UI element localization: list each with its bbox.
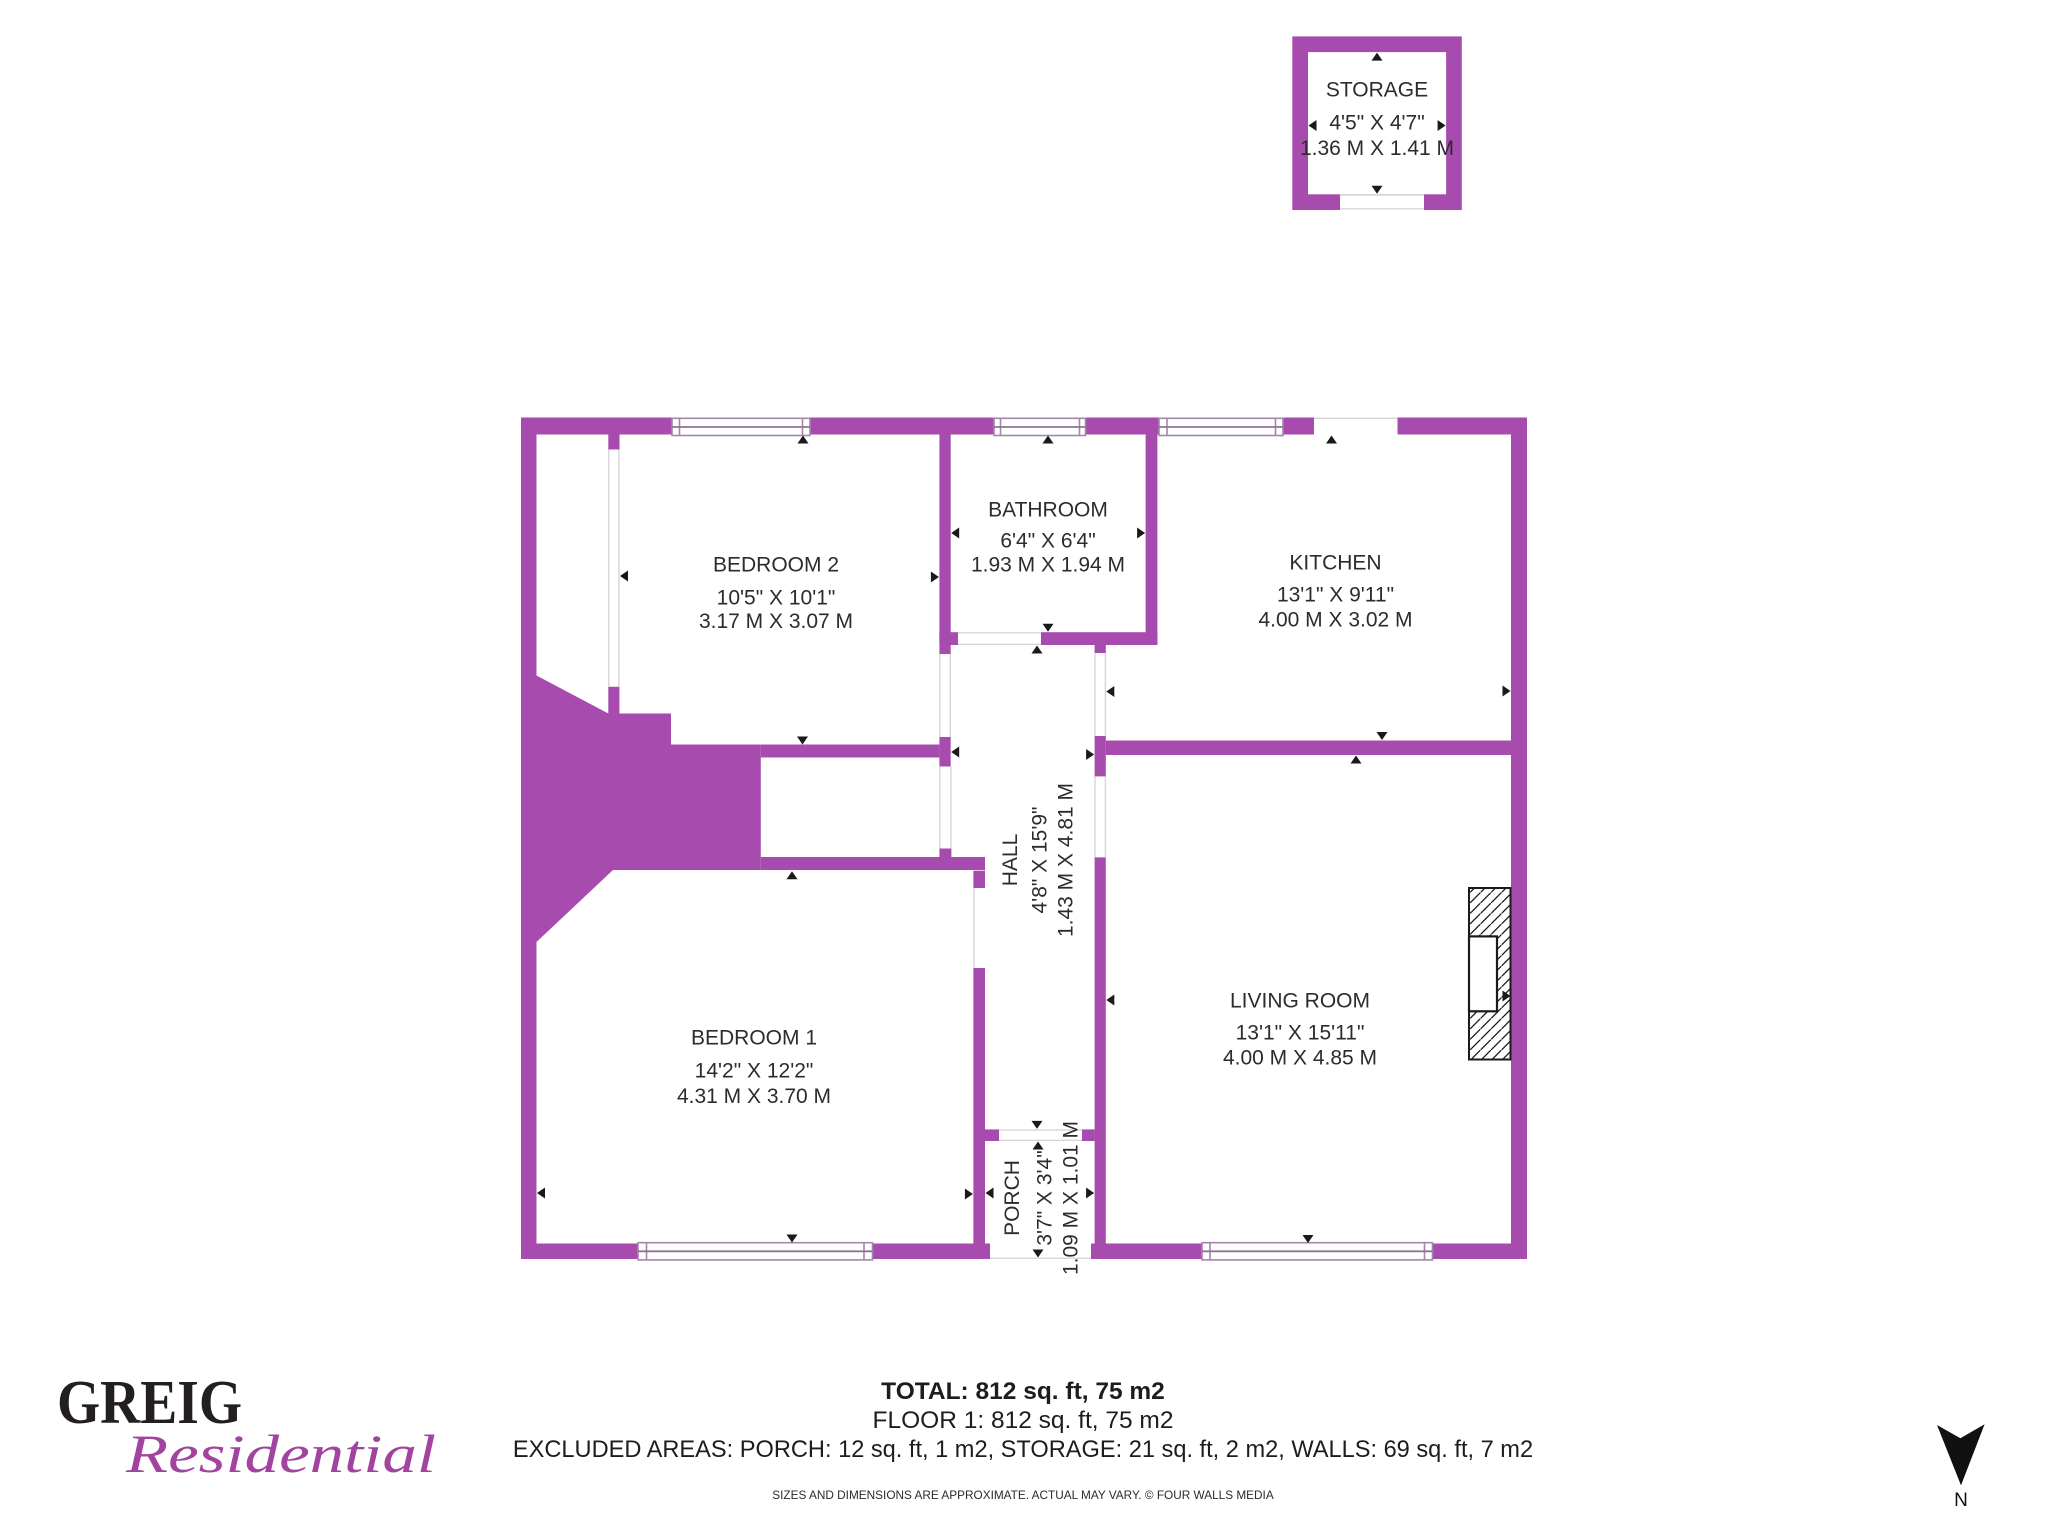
svg-text:1.36 M X 1.41 M: 1.36 M X 1.41 M — [1300, 137, 1454, 160]
svg-text:10'5" X 10'1": 10'5" X 10'1" — [717, 586, 836, 609]
svg-text:N: N — [1954, 1490, 1968, 1511]
svg-text:3.17 M X 3.07 M: 3.17 M X 3.07 M — [699, 610, 853, 633]
svg-text:4.00 M X 3.02 M: 4.00 M X 3.02 M — [1258, 609, 1412, 632]
svg-text:1.09 M X 1.01 M: 1.09 M X 1.01 M — [1060, 1121, 1083, 1275]
svg-text:3'7" X 3'4": 3'7" X 3'4" — [1034, 1150, 1057, 1245]
svg-text:Residential: Residential — [125, 1424, 436, 1484]
svg-text:BEDROOM 2: BEDROOM 2 — [713, 554, 839, 577]
svg-text:EXCLUDED AREAS: PORCH: 12 sq.: EXCLUDED AREAS: PORCH: 12 sq. ft, 1 m2, … — [513, 1437, 1533, 1463]
svg-text:1.43 M X 4.81 M: 1.43 M X 4.81 M — [1055, 783, 1078, 937]
svg-text:4.00 M X 4.85 M: 4.00 M X 4.85 M — [1223, 1046, 1377, 1069]
svg-text:14'2" X 12'2": 14'2" X 12'2" — [695, 1060, 814, 1083]
svg-text:LIVING ROOM: LIVING ROOM — [1230, 990, 1370, 1013]
svg-text:TOTAL: 812 sq. ft, 75 m2: TOTAL: 812 sq. ft, 75 m2 — [881, 1378, 1165, 1405]
svg-text:4.31 M X 3.70 M: 4.31 M X 3.70 M — [677, 1085, 831, 1108]
svg-text:13'1" X 9'11": 13'1" X 9'11" — [1277, 584, 1394, 607]
svg-text:BATHROOM: BATHROOM — [988, 499, 1108, 522]
svg-text:BEDROOM 1: BEDROOM 1 — [691, 1027, 817, 1050]
svg-text:13'1" X 15'11": 13'1" X 15'11" — [1236, 1022, 1365, 1045]
svg-text:STORAGE: STORAGE — [1326, 79, 1428, 102]
svg-text:SIZES AND DIMENSIONS ARE APPRO: SIZES AND DIMENSIONS ARE APPROXIMATE. AC… — [772, 1488, 1274, 1502]
svg-text:HALL: HALL — [999, 834, 1022, 887]
svg-text:1.93 M X 1.94 M: 1.93 M X 1.94 M — [971, 554, 1125, 577]
svg-text:6'4" X 6'4": 6'4" X 6'4" — [1000, 530, 1095, 553]
svg-text:4'5" X 4'7": 4'5" X 4'7" — [1329, 112, 1424, 135]
svg-text:KITCHEN: KITCHEN — [1289, 552, 1381, 575]
svg-text:FLOOR 1: 812 sq. ft, 75 m2: FLOOR 1: 812 sq. ft, 75 m2 — [873, 1407, 1174, 1434]
svg-text:PORCH: PORCH — [1001, 1160, 1024, 1236]
svg-text:4'8" X 15'9": 4'8" X 15'9" — [1029, 807, 1052, 914]
